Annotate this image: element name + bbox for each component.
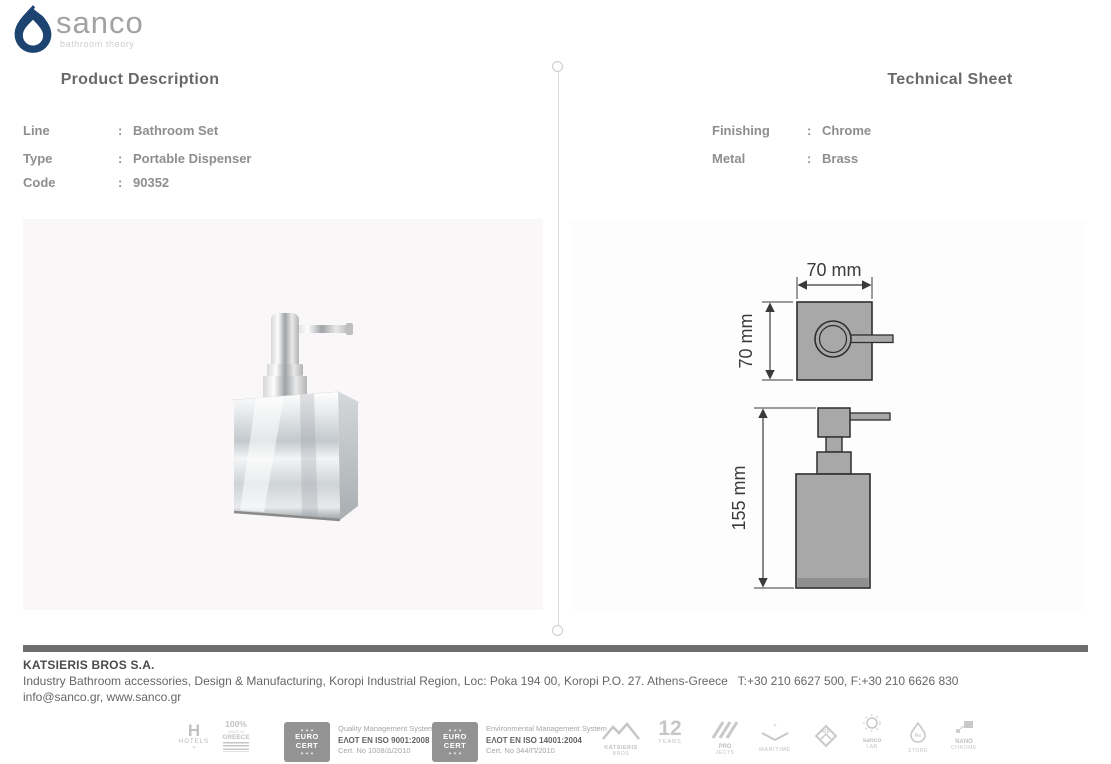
- diagonal-stripes-icon: [710, 721, 740, 739]
- cert1-line2: ΕΛΟΤ EN ISO 9001:2008: [338, 735, 434, 747]
- product-photo-dispenser: [228, 308, 368, 526]
- cert2-line3: Cert. No 344/Π/2010: [486, 746, 607, 757]
- footer-separator-bar: [23, 645, 1088, 652]
- field-metal-colon: :: [807, 151, 811, 166]
- field-type-colon: :: [118, 151, 122, 166]
- cert2-line1: Environmental Management System: [486, 724, 607, 735]
- years-label: YEARS: [652, 739, 688, 745]
- drawing-side-view-base: [798, 578, 869, 587]
- katsieris-line2: BROS: [597, 751, 645, 757]
- technical-sheet-title: Technical Sheet: [830, 71, 1070, 89]
- drawing-side-view-body: [796, 474, 870, 588]
- cert2-cert: CERT: [444, 742, 466, 751]
- badge-nano-chrome: NANO CHROME: [942, 720, 986, 751]
- lab-line2: LAB: [850, 744, 894, 750]
- technical-drawing: 70 mm 70 mm 155 mm: [690, 245, 920, 605]
- field-line-label: Line: [23, 123, 50, 138]
- badge-re-store: Re STORE: [900, 722, 936, 754]
- badge-maritime: ✶ MARITIME: [750, 723, 800, 753]
- divider-bottom-dot: [552, 625, 563, 636]
- badge-hotels: H HOTELS ✶: [170, 722, 218, 751]
- drawing-top-view-spout: [850, 335, 893, 343]
- greece-country: GREECE: [217, 734, 255, 741]
- dim-top-width-label: 70 mm: [806, 260, 861, 280]
- field-code-label: Code: [23, 175, 56, 190]
- brand-name: sanco: [56, 5, 144, 41]
- cert1-cert: CERT: [296, 742, 318, 751]
- hotels-star-icon: ✶: [170, 745, 218, 751]
- diamond-icon: ME: [811, 721, 841, 751]
- eurocert-quality-badge-icon: ✶ ✶ ✶ EURO CERT ✶ ✶ ✶: [284, 722, 330, 762]
- cert2-line2: ΕΛΟΤ EN ISO 14001:2004: [486, 735, 607, 747]
- product-sheet: sanco bathroom theory Product Descriptio…: [0, 0, 1111, 764]
- store-line1: Re: [915, 733, 922, 739]
- store-line2: STORE: [900, 748, 936, 754]
- field-code-value: 90352: [133, 175, 169, 190]
- field-line-colon: :: [118, 123, 122, 138]
- eurocert-environment-badge-icon: ✶ ✶ ✶ EURO CERT ✶ ✶ ✶: [432, 722, 478, 762]
- droplet-icon: Re: [909, 722, 927, 743]
- cert1-line3: Cert. No 1008/Δ/2010: [338, 746, 434, 757]
- drawing-side-view-neck: [826, 437, 842, 452]
- cert1-line1: Quality Management System: [338, 724, 434, 735]
- pump-spout: [294, 325, 350, 333]
- badge-home-diamond: ME: [806, 721, 846, 756]
- cert1-stars-bottom: ✶ ✶ ✶: [300, 751, 314, 756]
- nano-line2: CHROME: [942, 745, 986, 751]
- badge-katsieris: KATSIERIS BROS: [597, 722, 645, 757]
- drawing-side-view-collar: [817, 452, 851, 474]
- center-divider-line: [558, 72, 559, 625]
- lightbulb-icon: [861, 714, 883, 732]
- cert2-stars-bottom: ✶ ✶ ✶: [448, 751, 462, 756]
- field-finishing-label: Finishing: [712, 123, 770, 138]
- field-code-colon: :: [118, 175, 122, 190]
- field-type-value: Portable Dispenser: [133, 151, 252, 166]
- maritime-wings-icon: [760, 731, 790, 742]
- greece-percent: 100%: [217, 719, 255, 729]
- lab-line1: sanco: [850, 737, 894, 744]
- maritime-star-icon: ✶: [750, 723, 800, 729]
- product-description-title: Product Description: [23, 71, 257, 89]
- brand-tagline: bathroom theory: [60, 39, 135, 49]
- dim-height-label: 155 mm: [729, 465, 749, 530]
- field-metal-value: Brass: [822, 151, 858, 166]
- greek-flag-icon: [223, 742, 249, 752]
- badge-sanco-lab: sanco LAB: [850, 714, 894, 750]
- drawing-top-view-pump-inner: [820, 326, 847, 353]
- drawing-side-view-spout: [848, 413, 890, 420]
- bottle-side-face: [338, 392, 358, 520]
- field-line-value: Bathroom Set: [133, 123, 218, 138]
- badge-projects: PRO JECTS: [704, 721, 746, 756]
- mountains-icon: [601, 722, 641, 740]
- eurocert-environment-text: Environmental Management System ΕΛΟΤ EN …: [486, 724, 607, 757]
- dim-top-depth-label: 70 mm: [736, 313, 756, 368]
- nano-pixels-icon: [953, 720, 975, 734]
- home-label: ME: [822, 729, 831, 735]
- drawing-side-view-pump-head: [818, 408, 850, 437]
- field-metal-label: Metal: [712, 151, 745, 166]
- footer-address: Industry Bathroom accessories, Design & …: [23, 674, 958, 688]
- badge-made-in-greece: 100% MADE IN GREECE: [217, 719, 255, 752]
- divider-top-dot: [552, 61, 563, 72]
- field-finishing-value: Chrome: [822, 123, 871, 138]
- footer-company-name: KATSIERIS BROS S.A.: [23, 658, 155, 672]
- maritime-label: MARITIME: [750, 747, 800, 753]
- badge-12-years: 12 YEARS: [652, 719, 688, 745]
- field-finishing-colon: :: [807, 123, 811, 138]
- field-type-label: Type: [23, 151, 52, 166]
- eurocert-quality-text: Quality Management System ΕΛΟΤ EN ISO 90…: [338, 724, 434, 757]
- hotels-h-icon: H: [170, 722, 218, 739]
- sanco-drop-logo-icon: [10, 4, 56, 54]
- projects-line2: JECTS: [704, 750, 746, 756]
- years-number: 12: [652, 719, 688, 739]
- footer-contact-links: info@sanco.gr, www.sanco.gr: [23, 690, 181, 704]
